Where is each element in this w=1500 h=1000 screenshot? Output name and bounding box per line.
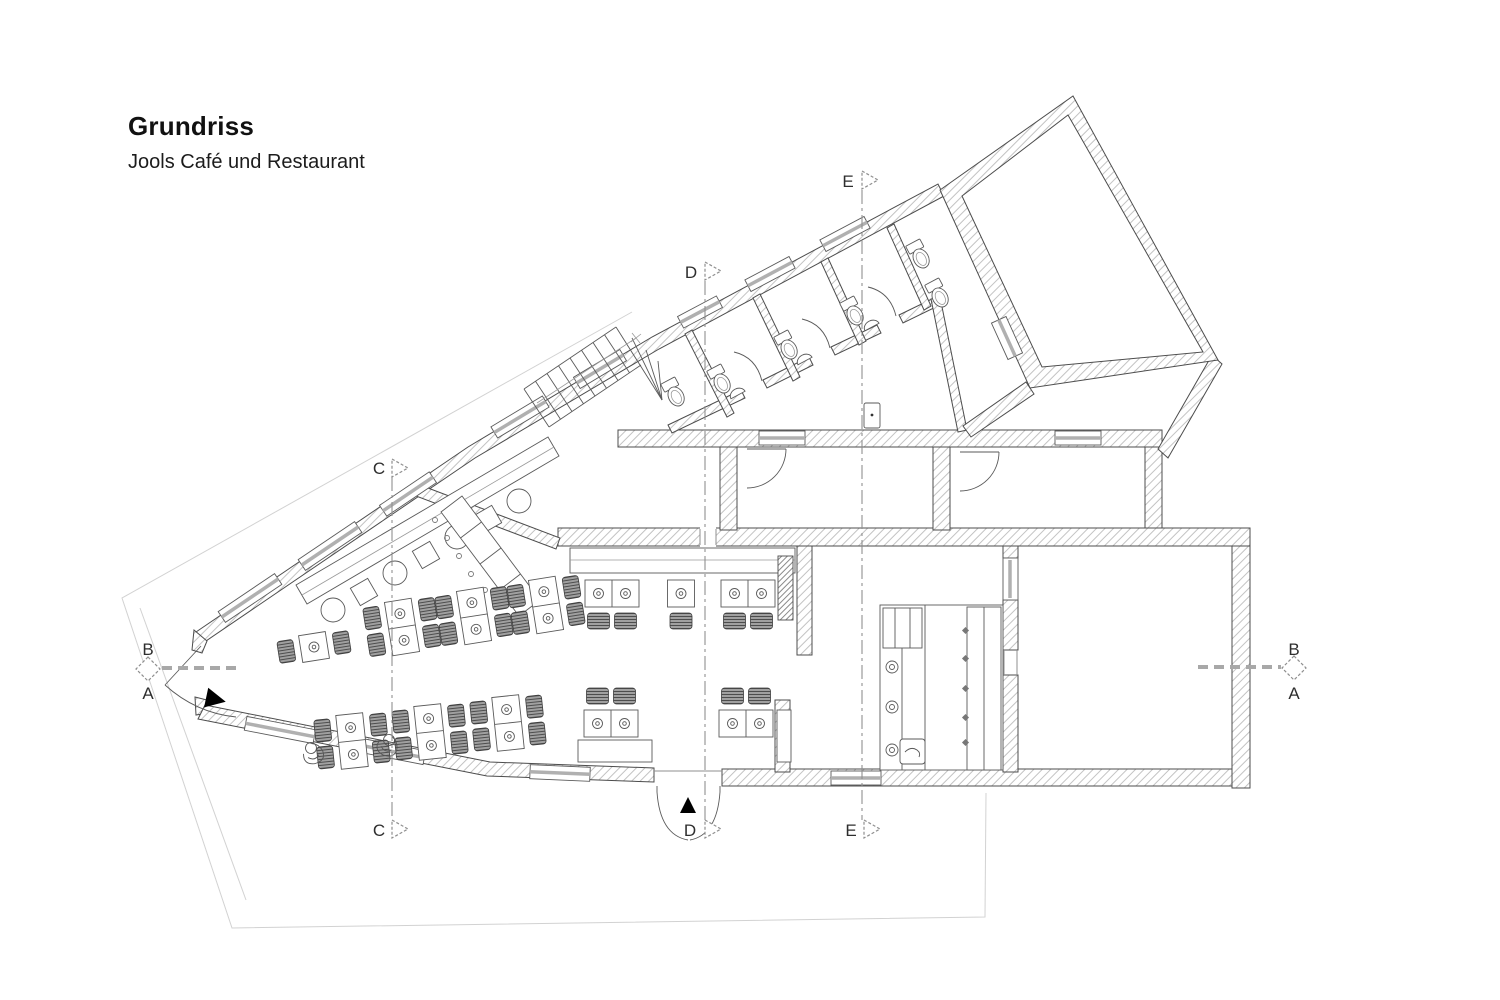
marker-label-e-top: E bbox=[842, 172, 853, 191]
marker-label-a-right: A bbox=[1288, 684, 1300, 703]
dining-tables-left bbox=[276, 573, 585, 772]
drawing-sheet: Grundriss Jools Café und Restaurant bbox=[0, 0, 1500, 1000]
drawing-subtitle: Jools Café und Restaurant bbox=[128, 151, 365, 174]
section-diamond-left bbox=[136, 657, 160, 681]
marker-label-e-bottom: E bbox=[845, 821, 856, 840]
kitchen-island bbox=[880, 605, 1003, 770]
dining-tables-mid bbox=[570, 548, 795, 762]
title-block: Grundriss Jools Café und Restaurant bbox=[128, 112, 365, 174]
section-arrow-c-top bbox=[392, 459, 408, 477]
entrance-arrow-bottom bbox=[680, 797, 696, 813]
section-marker-ab-right: B A bbox=[1282, 640, 1306, 703]
marker-label-c-top: C bbox=[373, 459, 385, 478]
section-arrow-e-bottom bbox=[864, 820, 880, 838]
section-arrow-e-top bbox=[862, 171, 878, 189]
marker-label-a-left: A bbox=[142, 684, 154, 703]
marker-label-d-top: D bbox=[685, 263, 697, 282]
section-diamond-right bbox=[1282, 656, 1306, 680]
drawing-title: Grundriss bbox=[128, 112, 365, 141]
section-arrow-c-bottom bbox=[392, 820, 408, 838]
section-arrow-d-top bbox=[705, 262, 721, 280]
marker-label-d-bottom: D bbox=[684, 821, 696, 840]
marker-label-b-left: B bbox=[142, 640, 153, 659]
section-marker-e: E E bbox=[842, 171, 880, 840]
marker-label-c-bottom: C bbox=[373, 821, 385, 840]
